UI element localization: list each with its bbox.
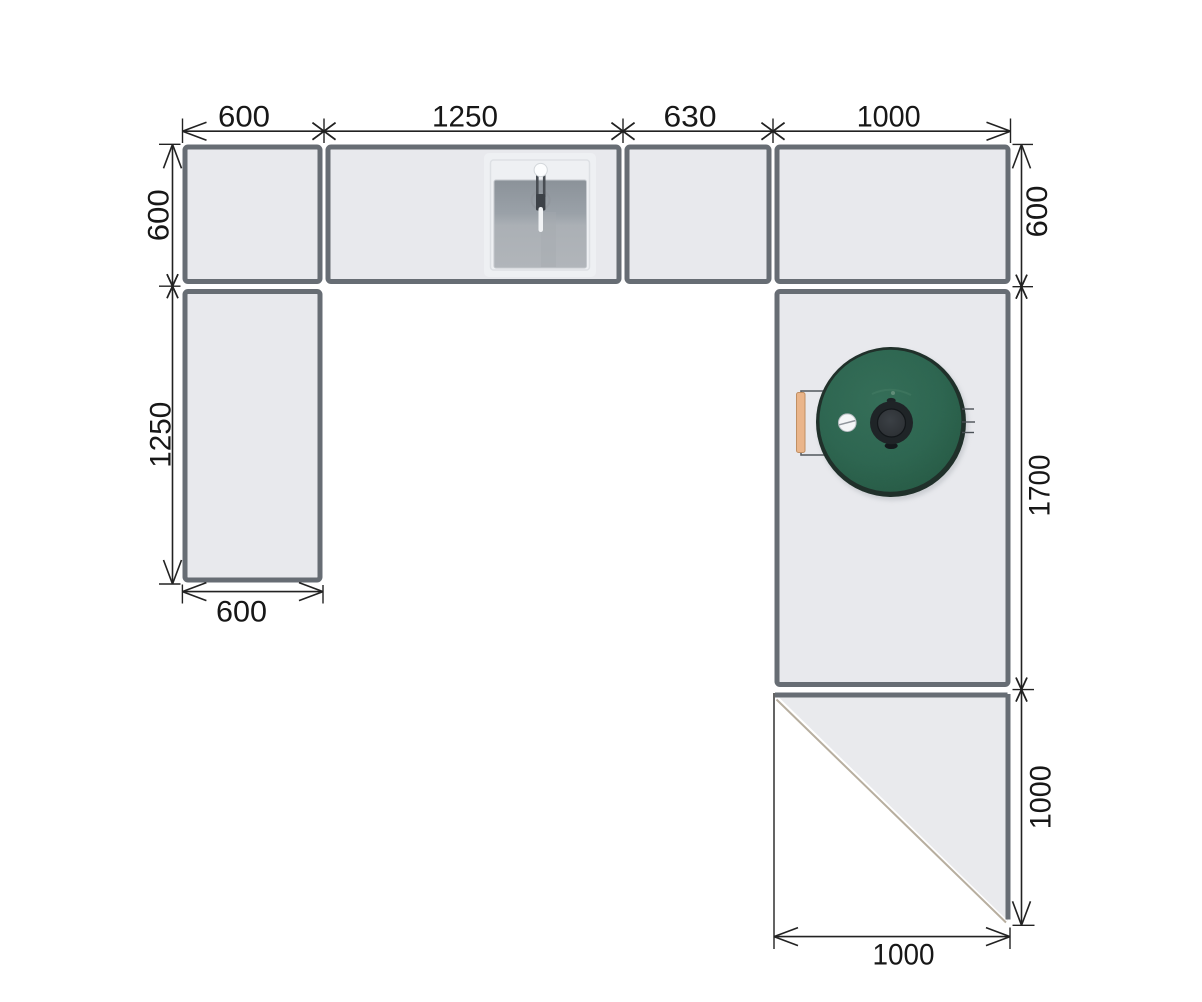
svg-text:600: 600 xyxy=(1021,186,1054,238)
svg-text:600: 600 xyxy=(143,189,176,241)
svg-text:1700: 1700 xyxy=(1024,455,1057,517)
svg-text:1000: 1000 xyxy=(857,101,921,134)
svg-text:600: 600 xyxy=(218,101,270,134)
svg-text:1000: 1000 xyxy=(873,939,935,972)
svg-text:630: 630 xyxy=(664,101,717,134)
svg-text:1000: 1000 xyxy=(1025,765,1058,829)
svg-text:600: 600 xyxy=(216,596,267,629)
svg-text:1250: 1250 xyxy=(432,101,498,134)
svg-text:1250: 1250 xyxy=(145,402,178,468)
